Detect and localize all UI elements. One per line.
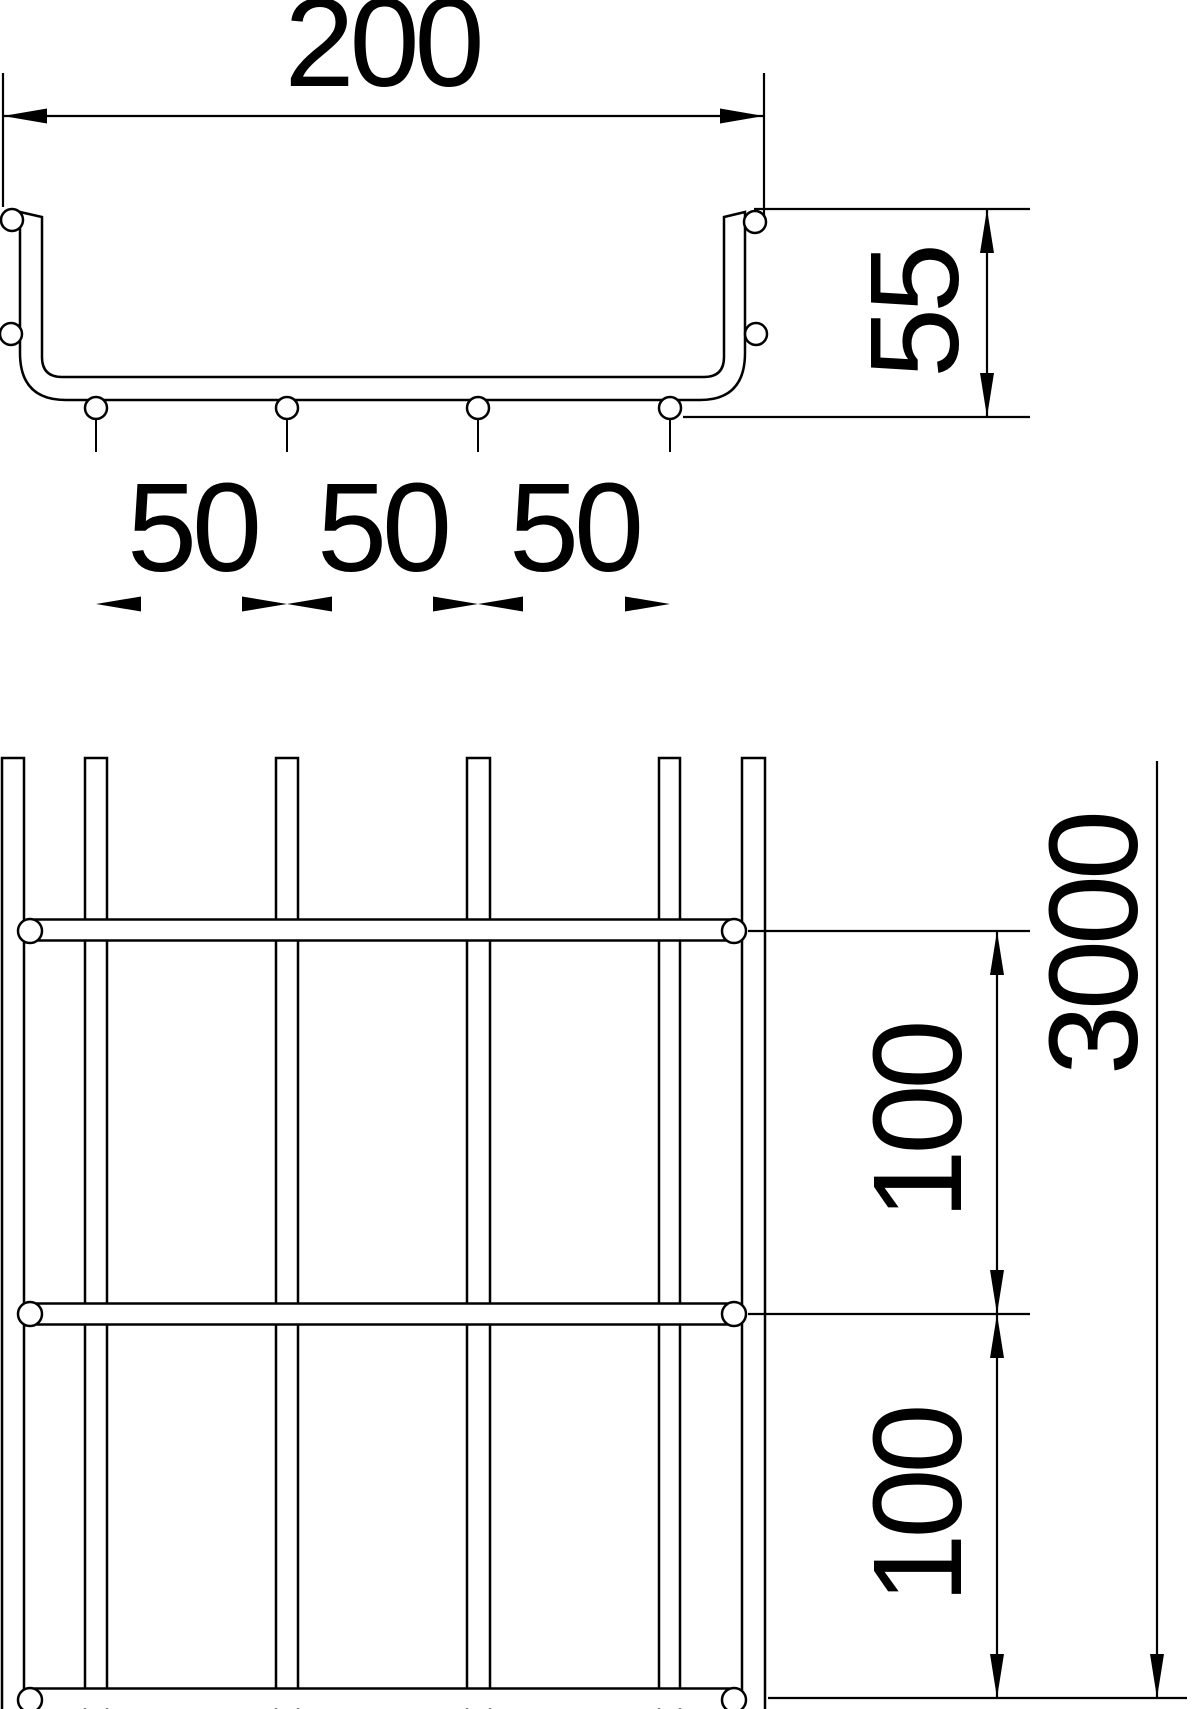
dim-label-height-55: 55 — [852, 248, 978, 378]
technical-drawing-page: 200 55 50 50 50 100 100 3000 — [0, 0, 1200, 1709]
dim-label-spacing-50-3: 50 — [509, 465, 639, 591]
cross-wire-2 — [18, 1302, 746, 1326]
wall-wire-left — [0, 323, 22, 345]
long-wire-2 — [85, 758, 107, 1709]
arrowhead-up — [980, 209, 994, 253]
floor-wire-3 — [467, 397, 489, 419]
long-wire-rim-right — [742, 758, 765, 1709]
floor-wire-sections — [85, 397, 681, 452]
dim-label-pitch-100-1: 100 — [855, 1024, 981, 1219]
floor-wire-2 — [276, 397, 298, 419]
cross-wire-1 — [18, 919, 746, 943]
long-wire-5 — [659, 758, 680, 1709]
spacing-arrows — [96, 597, 670, 612]
arrowhead-right — [720, 109, 764, 124]
longitudinal-wires — [2, 758, 765, 1709]
arrowhead-left — [3, 109, 47, 124]
arrowhead-down — [980, 373, 994, 417]
drawing-linework — [0, 0, 1200, 1709]
cross-wire-3 — [18, 1688, 746, 1709]
rim-wire-right — [744, 211, 766, 233]
side-wire-sections — [0, 209, 767, 345]
long-wire-rim-left — [2, 758, 24, 1709]
wall-wire-right — [745, 323, 767, 345]
long-wire-4 — [467, 758, 490, 1709]
floor-wire-1 — [85, 397, 107, 419]
dim-label-width-200: 200 — [284, 0, 479, 106]
floor-wire-4 — [659, 397, 681, 419]
dim-label-pitch-100-2: 100 — [855, 1408, 981, 1603]
channel-profile — [20, 212, 745, 400]
rim-wire-left — [1, 209, 23, 231]
dim-label-spacing-50-1: 50 — [127, 465, 257, 591]
plan-view — [2, 758, 1187, 1709]
dim-label-spacing-50-2: 50 — [317, 465, 447, 591]
dim-label-length-3000: 3000 — [1031, 815, 1157, 1075]
long-wire-3 — [276, 758, 298, 1709]
